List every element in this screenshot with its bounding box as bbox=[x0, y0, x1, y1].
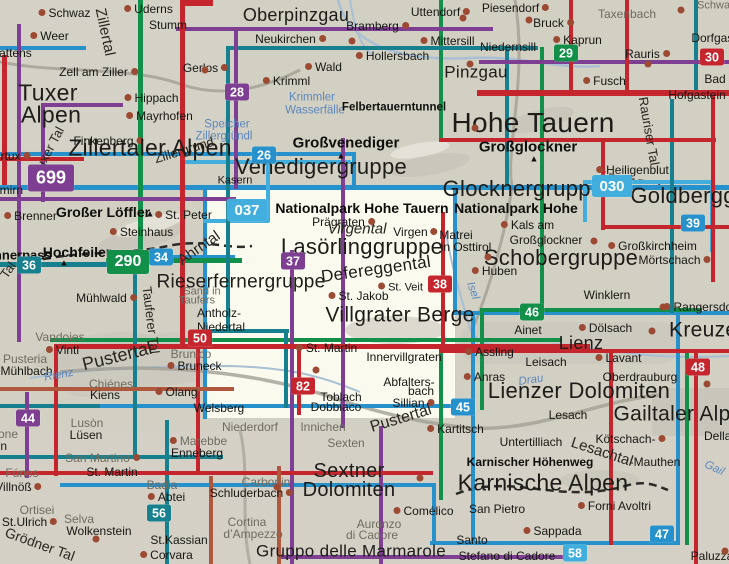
sheet-boundary-line bbox=[694, 0, 698, 93]
town-dot bbox=[553, 36, 560, 43]
map-label: Olang bbox=[152, 386, 197, 398]
map-sheet-badge: 030 bbox=[592, 175, 632, 197]
label-text: Mörtschach bbox=[638, 253, 700, 267]
map-label: Lüsen bbox=[70, 429, 103, 441]
label-text: Wattens bbox=[0, 46, 32, 60]
town-dot bbox=[221, 64, 228, 71]
sheet-boundary-line bbox=[479, 60, 729, 64]
town-dot bbox=[608, 242, 615, 249]
label-text: Goldberggruppe bbox=[630, 183, 729, 208]
town-dot bbox=[148, 493, 155, 500]
label-text: Schluderbach bbox=[210, 486, 283, 500]
label-text: Hofgastein bbox=[668, 88, 725, 102]
sheet-boundary-line bbox=[694, 349, 698, 564]
map-label: Forni Avoltri bbox=[575, 500, 651, 512]
map-label: Sappada bbox=[520, 525, 581, 537]
map-label: Welsberg bbox=[194, 402, 244, 414]
map-label: San Pietro bbox=[469, 503, 525, 515]
map-label: Villgrater Berge bbox=[325, 305, 474, 326]
map-label: ▲ bbox=[530, 155, 539, 164]
map-label: Kals am bbox=[498, 219, 554, 231]
label-text: -Mauthen bbox=[630, 455, 681, 469]
label-text: Karnischer Höhenweg bbox=[467, 455, 594, 469]
map-label: Dolomiten bbox=[303, 480, 396, 500]
map-label: Winklern bbox=[584, 289, 631, 301]
town-dot bbox=[660, 304, 667, 311]
label-text: Stefano di Cadore bbox=[459, 549, 556, 563]
label-text: Dorfgastein bbox=[691, 31, 729, 45]
map-label: Großvenediger bbox=[293, 136, 400, 151]
map-sheet-badge: 29 bbox=[554, 45, 578, 62]
map-label: Rangersdorf bbox=[660, 301, 729, 313]
map-label: Hofgastein bbox=[668, 89, 725, 101]
label-text: Ainet bbox=[514, 323, 541, 337]
map-label: Lavant bbox=[592, 352, 641, 364]
town-dot bbox=[523, 527, 530, 534]
label-text: Olang bbox=[165, 385, 197, 399]
label-text: Assling bbox=[475, 345, 514, 359]
map-sheet-badge: 56 bbox=[147, 505, 171, 522]
map-label: Glocknergruppe bbox=[443, 178, 604, 200]
map-label: Rauris bbox=[625, 48, 673, 60]
map-sheet-badge: 290 bbox=[107, 250, 149, 274]
map-sheet-badge: 38 bbox=[428, 276, 452, 293]
label-text: Zell am Ziller bbox=[59, 65, 128, 79]
label-text: Taxenbach bbox=[598, 7, 656, 21]
label-text: ▲ bbox=[60, 258, 69, 268]
town-dot bbox=[319, 35, 326, 42]
town-dot bbox=[393, 507, 400, 514]
map-label: Hintertux bbox=[0, 150, 34, 162]
label-text: Kals am bbox=[511, 218, 554, 232]
map-label: d’Ampezzo bbox=[223, 528, 282, 540]
town-dot bbox=[4, 212, 11, 219]
map-label: Schmirn bbox=[0, 184, 23, 196]
map-sheet-badge: 39 bbox=[681, 215, 705, 232]
map-sheet-badge: 28 bbox=[225, 84, 249, 101]
label-text: Kreuzeck bbox=[669, 319, 729, 342]
label-text: Bruneck bbox=[177, 359, 221, 373]
map-label: Großer Löffler bbox=[56, 205, 150, 219]
map-label: Goldberggruppe bbox=[630, 185, 729, 207]
town-dot bbox=[649, 328, 656, 335]
label-text: Innervillgraten bbox=[366, 350, 441, 364]
map-label: Zillertaler Alpen bbox=[68, 137, 232, 160]
label-text: Hippach bbox=[134, 91, 178, 105]
map-label: Lesach bbox=[549, 409, 588, 421]
map-label: Taufers bbox=[179, 296, 215, 307]
map-label: Abtei bbox=[145, 491, 185, 503]
label-text: Untertilliach bbox=[500, 435, 563, 449]
map-label: Felbertauerntunnel bbox=[342, 102, 446, 114]
label-text: Schmirn bbox=[0, 183, 23, 197]
label-text: Alpen bbox=[21, 102, 81, 128]
map-label: Mühlwald bbox=[76, 292, 140, 304]
town-dot bbox=[464, 373, 471, 380]
town-dot bbox=[417, 475, 424, 482]
sheet-boundary-line bbox=[138, 0, 143, 263]
label-text: Gerlos bbox=[183, 61, 218, 75]
map-label: Villnöß bbox=[0, 481, 45, 493]
map-label: Speicher bbox=[204, 119, 249, 131]
label-text: Piesendorf bbox=[482, 1, 539, 15]
label-text: Speicher bbox=[204, 118, 249, 130]
label-text: Pinzgau bbox=[444, 63, 508, 82]
sheet-boundary-line bbox=[284, 329, 288, 408]
map-label: di Cadore bbox=[346, 529, 398, 541]
map-label: Neukirchen bbox=[255, 33, 329, 45]
town-dot bbox=[402, 22, 409, 29]
label-text: Uderns bbox=[134, 2, 173, 16]
map-label: Enneberg bbox=[171, 447, 223, 459]
label-text: Großer Löffler bbox=[56, 204, 150, 220]
label-text: Innichen bbox=[300, 420, 345, 434]
town-dot bbox=[663, 50, 670, 57]
map-label: Fusch bbox=[580, 75, 626, 87]
map-label: ▲ bbox=[60, 259, 69, 268]
town-dot bbox=[485, 254, 492, 261]
label-text: Großkirchheim bbox=[618, 239, 697, 253]
label-text: Sexten bbox=[327, 436, 364, 450]
map-label: Wasserfälle bbox=[285, 105, 345, 117]
label-text: St. Martin bbox=[306, 341, 357, 355]
town-dot bbox=[35, 483, 42, 490]
label-text: Rieserfernergruppe bbox=[156, 272, 325, 293]
label-text: Wald bbox=[315, 60, 342, 74]
label-text: Winklern bbox=[584, 288, 631, 302]
town-dot bbox=[526, 17, 533, 24]
map-sheet-badge: 699 bbox=[28, 165, 74, 192]
label-text: Felbertauerntunnel bbox=[342, 101, 446, 113]
label-text: Niedernsill bbox=[480, 40, 536, 54]
map-label: Wattens bbox=[0, 47, 32, 59]
label-text: Dobbiaco bbox=[311, 400, 362, 414]
town-dot bbox=[30, 32, 37, 39]
label-text: Gailtaler Alpen bbox=[613, 403, 729, 426]
town-dot bbox=[596, 166, 603, 173]
map-sheet-badge: 37 bbox=[281, 253, 305, 270]
town-dot bbox=[460, 15, 467, 22]
map-label: Brixen bbox=[0, 440, 7, 452]
town-dot bbox=[349, 38, 356, 45]
label-text: Santo bbox=[456, 533, 487, 547]
label-text: Enneberg bbox=[171, 446, 223, 460]
label-text: Fusch bbox=[593, 74, 626, 88]
map-label: Assling bbox=[462, 346, 514, 358]
label-text: Gruppo delle Marmarole bbox=[256, 542, 446, 561]
map-label: Kötschach- bbox=[595, 433, 668, 445]
sheet-boundary-line bbox=[439, 0, 443, 141]
label-text: St. Peter bbox=[165, 208, 212, 222]
map-label: Piesendorf bbox=[482, 2, 552, 14]
map-label: Corvara bbox=[137, 549, 193, 561]
label-text: Nationalpark Hohe Tauern bbox=[275, 200, 448, 216]
label-text: Oberpinzgau bbox=[243, 5, 349, 25]
map-label: Nationalpark Hohe Tauern bbox=[275, 201, 448, 215]
town-dot bbox=[155, 388, 162, 395]
sheet-boundary-line bbox=[601, 225, 729, 229]
label-text: Mayrhofen bbox=[136, 109, 193, 123]
town-dot bbox=[722, 548, 729, 555]
map-sheet-badge: 46 bbox=[520, 304, 544, 321]
map-label: Vandoies bbox=[35, 331, 84, 343]
label-text: Taufers bbox=[179, 295, 215, 307]
map-label: Dorfgastein bbox=[691, 32, 729, 44]
map-label: Leisach bbox=[525, 356, 566, 368]
map-label: Hollersbach bbox=[353, 50, 429, 62]
town-dot bbox=[170, 437, 177, 444]
map-label: Oberpinzgau bbox=[243, 6, 349, 24]
sheet-boundary-line bbox=[2, 55, 7, 185]
map-label: Karnische Alpen bbox=[458, 472, 629, 495]
town-dot bbox=[24, 152, 31, 159]
label-text: Nationalpark Hohe bbox=[454, 200, 578, 216]
map-sheet-badge: 48 bbox=[686, 359, 710, 376]
map-sheet-badge: 44 bbox=[16, 410, 40, 427]
town-dot bbox=[202, 67, 209, 74]
map-label: Großkirchheim bbox=[605, 240, 697, 252]
map-label: Großglockner bbox=[479, 140, 577, 155]
map-label: Mittersill bbox=[418, 35, 475, 47]
map-label: Innichen bbox=[300, 421, 345, 433]
map-sheet-badge: 47 bbox=[650, 526, 674, 543]
label-text: St. Martin bbox=[86, 465, 137, 479]
map-label: Hippach bbox=[121, 92, 178, 104]
map-label: Karnischer Höhenweg bbox=[467, 456, 594, 468]
town-dot bbox=[678, 7, 685, 14]
map-label: Steinhaus bbox=[107, 226, 173, 238]
town-dot bbox=[155, 211, 162, 218]
town-dot bbox=[110, 228, 117, 235]
map-label: Schwaz bbox=[35, 7, 90, 19]
map-label: Vintl bbox=[43, 344, 79, 356]
label-text: Karnische Alpen bbox=[458, 470, 629, 496]
map-label: Hochfeiler bbox=[43, 245, 111, 259]
label-text: Neukirchen bbox=[255, 32, 316, 46]
label-text: Sappada bbox=[533, 524, 581, 538]
map-label: Sextner bbox=[313, 461, 384, 481]
map-label: Taxenbach bbox=[598, 8, 656, 20]
map-label: Untertilliach bbox=[500, 436, 563, 448]
map-label: Dellach bbox=[704, 430, 729, 442]
label-text: Vandoies bbox=[35, 330, 84, 344]
label-text: Hochfeiler bbox=[43, 244, 111, 260]
sheet-boundary-line bbox=[0, 404, 100, 408]
map-label: Schwarzach bbox=[697, 1, 729, 12]
town-dot bbox=[274, 484, 281, 491]
label-text: Wolkenstein bbox=[66, 524, 131, 538]
map-label: Sexten bbox=[327, 437, 364, 449]
sheet-boundary-line bbox=[185, 0, 213, 6]
map-label: Stefano di Cadore bbox=[459, 550, 556, 562]
town-dot bbox=[126, 112, 133, 119]
map-label: Innervillgraten bbox=[366, 351, 441, 363]
label-text: Kiens bbox=[90, 388, 120, 402]
map-label: Antholz- bbox=[197, 307, 241, 319]
map-label: Nationalpark Hohe bbox=[454, 201, 578, 215]
label-text: Wasserfälle bbox=[285, 104, 345, 116]
map-label: St. Jakob bbox=[325, 290, 388, 302]
map-label: St. Martin bbox=[293, 342, 357, 354]
town-dot bbox=[579, 324, 586, 331]
label-text: Fúnes bbox=[5, 466, 38, 480]
label-text: Stumm bbox=[149, 18, 187, 32]
label-text: Uttendorf bbox=[411, 5, 460, 19]
label-text: Steinhaus bbox=[120, 225, 173, 239]
map-sheet-badge: 45 bbox=[451, 399, 475, 416]
map-label: Schluderbach bbox=[210, 487, 296, 499]
town-dot bbox=[328, 292, 335, 299]
town-dot bbox=[263, 77, 270, 84]
town-dot bbox=[704, 256, 711, 263]
town-dot bbox=[501, 221, 508, 228]
town-dot bbox=[38, 9, 45, 16]
map-label: Alpen bbox=[21, 104, 81, 127]
label-text: Dolomiten bbox=[303, 479, 396, 501]
sheet-boundary-line bbox=[480, 308, 484, 410]
label-text: Glocknergruppe bbox=[443, 176, 604, 201]
sheet-boundary-line bbox=[290, 250, 294, 564]
map-sheet-badge: 36 bbox=[17, 257, 41, 274]
label-text: Lesach bbox=[549, 408, 588, 422]
map-sheet-badge: 50 bbox=[188, 330, 212, 347]
label-text: Lienz bbox=[559, 333, 604, 353]
map-label: Bramberg bbox=[346, 20, 412, 32]
sheet-boundary-line bbox=[685, 350, 689, 545]
town-dot bbox=[286, 489, 293, 496]
town-dot bbox=[133, 454, 140, 461]
label-text: Villnöß bbox=[0, 480, 32, 494]
map-label: Brenner bbox=[1, 210, 57, 222]
town-dot bbox=[140, 551, 147, 558]
label-text: Abtei bbox=[158, 490, 185, 504]
map-label: Fúnes bbox=[5, 467, 38, 479]
map-label: Uderns bbox=[121, 3, 173, 15]
map-label: Krimmler bbox=[289, 92, 335, 104]
label-text: Großglockner bbox=[479, 139, 577, 156]
sheet-boundary-line bbox=[54, 344, 58, 476]
label-text: Rauris bbox=[625, 47, 660, 61]
map-sheet-badge: 34 bbox=[149, 249, 173, 266]
town-dot bbox=[313, 367, 320, 374]
map-label: San Martino bbox=[65, 452, 143, 464]
town-dot bbox=[296, 344, 303, 351]
label-text: Kötschach- bbox=[595, 432, 655, 446]
label-text: Kartitsch bbox=[437, 422, 484, 436]
town-dot bbox=[591, 238, 598, 245]
map-label: Kreuzeck bbox=[669, 320, 729, 341]
town-dot bbox=[465, 348, 472, 355]
map-label: Bad bbox=[704, 73, 725, 85]
label-text: San Martino bbox=[65, 451, 130, 465]
label-text: Bramberg bbox=[346, 19, 399, 33]
map-label: Pinzgau bbox=[444, 64, 508, 81]
map-label: -Mauthen bbox=[630, 456, 681, 468]
map-label: Gruppo delle Marmarole bbox=[256, 543, 446, 560]
town-dot bbox=[50, 518, 57, 525]
label-text: St. Jakob bbox=[338, 289, 388, 303]
map-label: Mörtschach bbox=[638, 254, 713, 266]
label-text: Villgrater Berge bbox=[325, 304, 474, 327]
map-label: Kartitsch bbox=[424, 423, 484, 435]
map-label: Stumm bbox=[149, 19, 187, 31]
label-text: Lienzer Dolomiten bbox=[488, 378, 670, 403]
label-text: Schwarzach bbox=[697, 0, 729, 12]
map-label: Comélico bbox=[390, 505, 453, 517]
map-label: Hohe Tauern bbox=[451, 109, 614, 137]
map-label: Wolkenstein bbox=[66, 525, 131, 537]
label-text: Hohe Tauern bbox=[451, 107, 614, 138]
sheet-boundary-line bbox=[676, 313, 680, 544]
map-label: Bruneck bbox=[164, 360, 221, 372]
label-text: Lüsen bbox=[70, 428, 103, 442]
label-text: Niederdorf bbox=[222, 420, 278, 434]
map-label: Niedernsill bbox=[480, 41, 536, 53]
label-text: Rangersdorf bbox=[673, 300, 729, 314]
town-dot bbox=[124, 5, 131, 12]
map-label: Mayrhofen bbox=[123, 110, 193, 122]
map-sheet-badge: 82 bbox=[291, 378, 315, 395]
town-dot bbox=[131, 68, 138, 75]
town-dot bbox=[578, 502, 585, 509]
town-dot bbox=[472, 125, 479, 132]
label-text: San Pietro bbox=[469, 502, 525, 516]
map-canvas: SchwazWeerWattensUdernsStummZillertalZel… bbox=[0, 0, 729, 564]
label-text: Hollersbach bbox=[366, 49, 429, 63]
sheet-boundary-line bbox=[0, 197, 236, 201]
map-label: Zell am Ziller bbox=[59, 66, 141, 78]
label-text: Brixen bbox=[0, 439, 7, 453]
label-text: Antholz- bbox=[197, 306, 241, 320]
town-dot bbox=[421, 37, 428, 44]
label-text: Krimmler bbox=[289, 91, 335, 103]
label-text: Krimml bbox=[273, 74, 310, 88]
town-dot bbox=[427, 425, 434, 432]
map-label: Gailtaler Alpen bbox=[613, 404, 729, 425]
map-label: Bruck bbox=[533, 17, 577, 29]
map-label: Ainet bbox=[514, 324, 541, 336]
label-text: Comélico bbox=[403, 504, 453, 518]
map-label: St. Martin bbox=[86, 466, 137, 478]
map-label: Rieserfernergruppe bbox=[156, 273, 325, 292]
label-text: ▲ bbox=[530, 154, 539, 164]
label-text: Brenner bbox=[14, 209, 57, 223]
map-label: Lienzer Dolomiten bbox=[488, 380, 670, 402]
map-sheet-badge: 26 bbox=[252, 147, 276, 164]
town-dot bbox=[93, 536, 100, 543]
map-label: St. Peter bbox=[152, 209, 212, 221]
town-dot bbox=[472, 267, 479, 274]
label-text: Mühlwald bbox=[76, 291, 127, 305]
label-text: di Cadore bbox=[346, 528, 398, 542]
label-text: Zillertaler Alpen bbox=[68, 135, 232, 161]
label-text: Leisach bbox=[525, 355, 566, 369]
town-dot bbox=[124, 94, 131, 101]
label-text: Weer bbox=[40, 29, 68, 43]
map-label: Wald bbox=[302, 61, 342, 73]
map-label: St.Kassian bbox=[150, 534, 207, 546]
map-sheet-badge: 30 bbox=[700, 49, 724, 66]
label-text: Welsberg bbox=[194, 401, 244, 415]
label-text: Bad bbox=[704, 72, 725, 86]
label-text: Corvara bbox=[150, 548, 193, 562]
map-label: Kiens bbox=[90, 389, 120, 401]
label-text: Schwaz bbox=[48, 6, 90, 20]
town-dot bbox=[305, 63, 312, 70]
sheet-boundary-line bbox=[176, 27, 493, 31]
label-text: d’Ampezzo bbox=[223, 527, 282, 541]
label-text: Großvenediger bbox=[293, 135, 400, 152]
